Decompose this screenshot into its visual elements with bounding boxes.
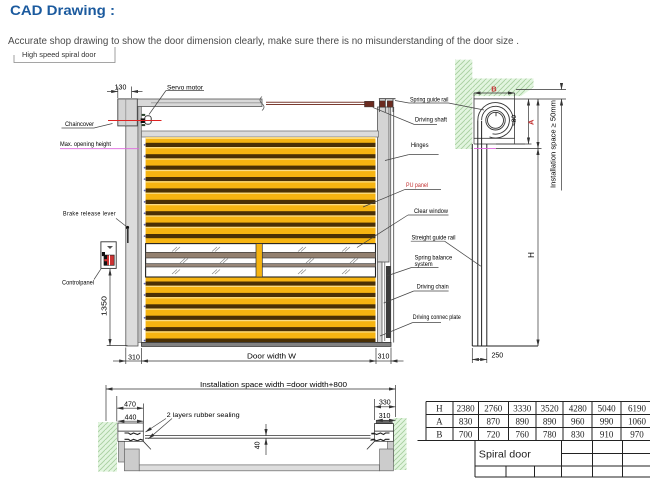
svg-text:250: 250 — [492, 353, 504, 360]
svg-text:440: 440 — [125, 415, 137, 422]
svg-text:990: 990 — [600, 416, 614, 426]
svg-text:890: 890 — [515, 416, 529, 426]
svg-text:<80: <80 — [511, 115, 518, 126]
svg-text:H: H — [436, 403, 443, 413]
svg-text:Accurate shop drawing to show: Accurate shop drawing to show the door d… — [8, 36, 519, 47]
svg-text:3330: 3330 — [513, 403, 532, 413]
svg-text:470: 470 — [124, 402, 136, 409]
svg-text:870: 870 — [487, 416, 501, 426]
svg-text:760: 760 — [515, 429, 529, 439]
svg-text:5040: 5040 — [598, 403, 617, 413]
svg-text:310: 310 — [378, 354, 390, 361]
svg-text:Hinges: Hinges — [411, 142, 429, 149]
svg-text:Driving shaft: Driving shaft — [415, 117, 447, 124]
svg-text:A: A — [527, 119, 536, 125]
svg-text:720: 720 — [487, 429, 501, 439]
svg-text:Spiral door: Spiral door — [479, 449, 532, 461]
svg-text:2760: 2760 — [484, 403, 503, 413]
svg-text:Driving connec plate: Driving connec plate — [413, 314, 461, 321]
svg-text:2380: 2380 — [457, 403, 476, 413]
svg-text:310: 310 — [379, 413, 391, 420]
svg-text:1350: 1350 — [102, 296, 109, 316]
svg-text:3520: 3520 — [541, 403, 560, 413]
svg-text:700: 700 — [459, 429, 473, 439]
svg-text:Driving chain: Driving chain — [417, 284, 449, 291]
svg-text:B: B — [491, 85, 497, 94]
svg-text:130: 130 — [115, 85, 127, 92]
svg-text:830: 830 — [571, 429, 585, 439]
svg-text:40: 40 — [254, 441, 261, 449]
svg-text:CAD Drawing :: CAD Drawing : — [10, 3, 115, 18]
svg-text:Installation space width =door: Installation space width =door width+800 — [200, 380, 347, 389]
svg-text:890: 890 — [543, 416, 557, 426]
svg-text:830: 830 — [459, 416, 473, 426]
svg-text:910: 910 — [600, 429, 614, 439]
svg-text:system: system — [415, 261, 433, 268]
svg-text:Clear window: Clear window — [414, 208, 448, 215]
svg-text:PU panel: PU panel — [406, 182, 428, 189]
svg-text:6190: 6190 — [628, 403, 647, 413]
svg-text:970: 970 — [630, 429, 644, 439]
svg-text:Max. opening height: Max. opening height — [60, 141, 111, 148]
svg-text:Brake release lever: Brake release lever — [63, 211, 116, 218]
svg-text:780: 780 — [543, 429, 557, 439]
svg-text:Controlpanel: Controlpanel — [62, 280, 94, 287]
svg-text:2 layers rubber sealing: 2 layers rubber sealing — [167, 412, 240, 419]
svg-text:A: A — [436, 416, 443, 426]
svg-text:Door width W: Door width W — [247, 352, 297, 361]
svg-text:4280: 4280 — [569, 403, 588, 413]
svg-text:Streight guide rail: Streight guide rail — [412, 235, 456, 242]
svg-text:330: 330 — [379, 400, 391, 407]
svg-text:Spring guide rail: Spring guide rail — [410, 97, 449, 104]
svg-text:B: B — [436, 429, 442, 439]
svg-text:Chaincover: Chaincover — [65, 121, 95, 128]
svg-text:High speed spiral door: High speed spiral door — [22, 50, 96, 59]
svg-text:1060: 1060 — [628, 416, 647, 426]
svg-text:310: 310 — [128, 355, 140, 362]
svg-text:960: 960 — [571, 416, 585, 426]
svg-text:H: H — [527, 252, 536, 258]
svg-text:Installation space ≥ 50mm: Installation space ≥ 50mm — [551, 100, 558, 188]
